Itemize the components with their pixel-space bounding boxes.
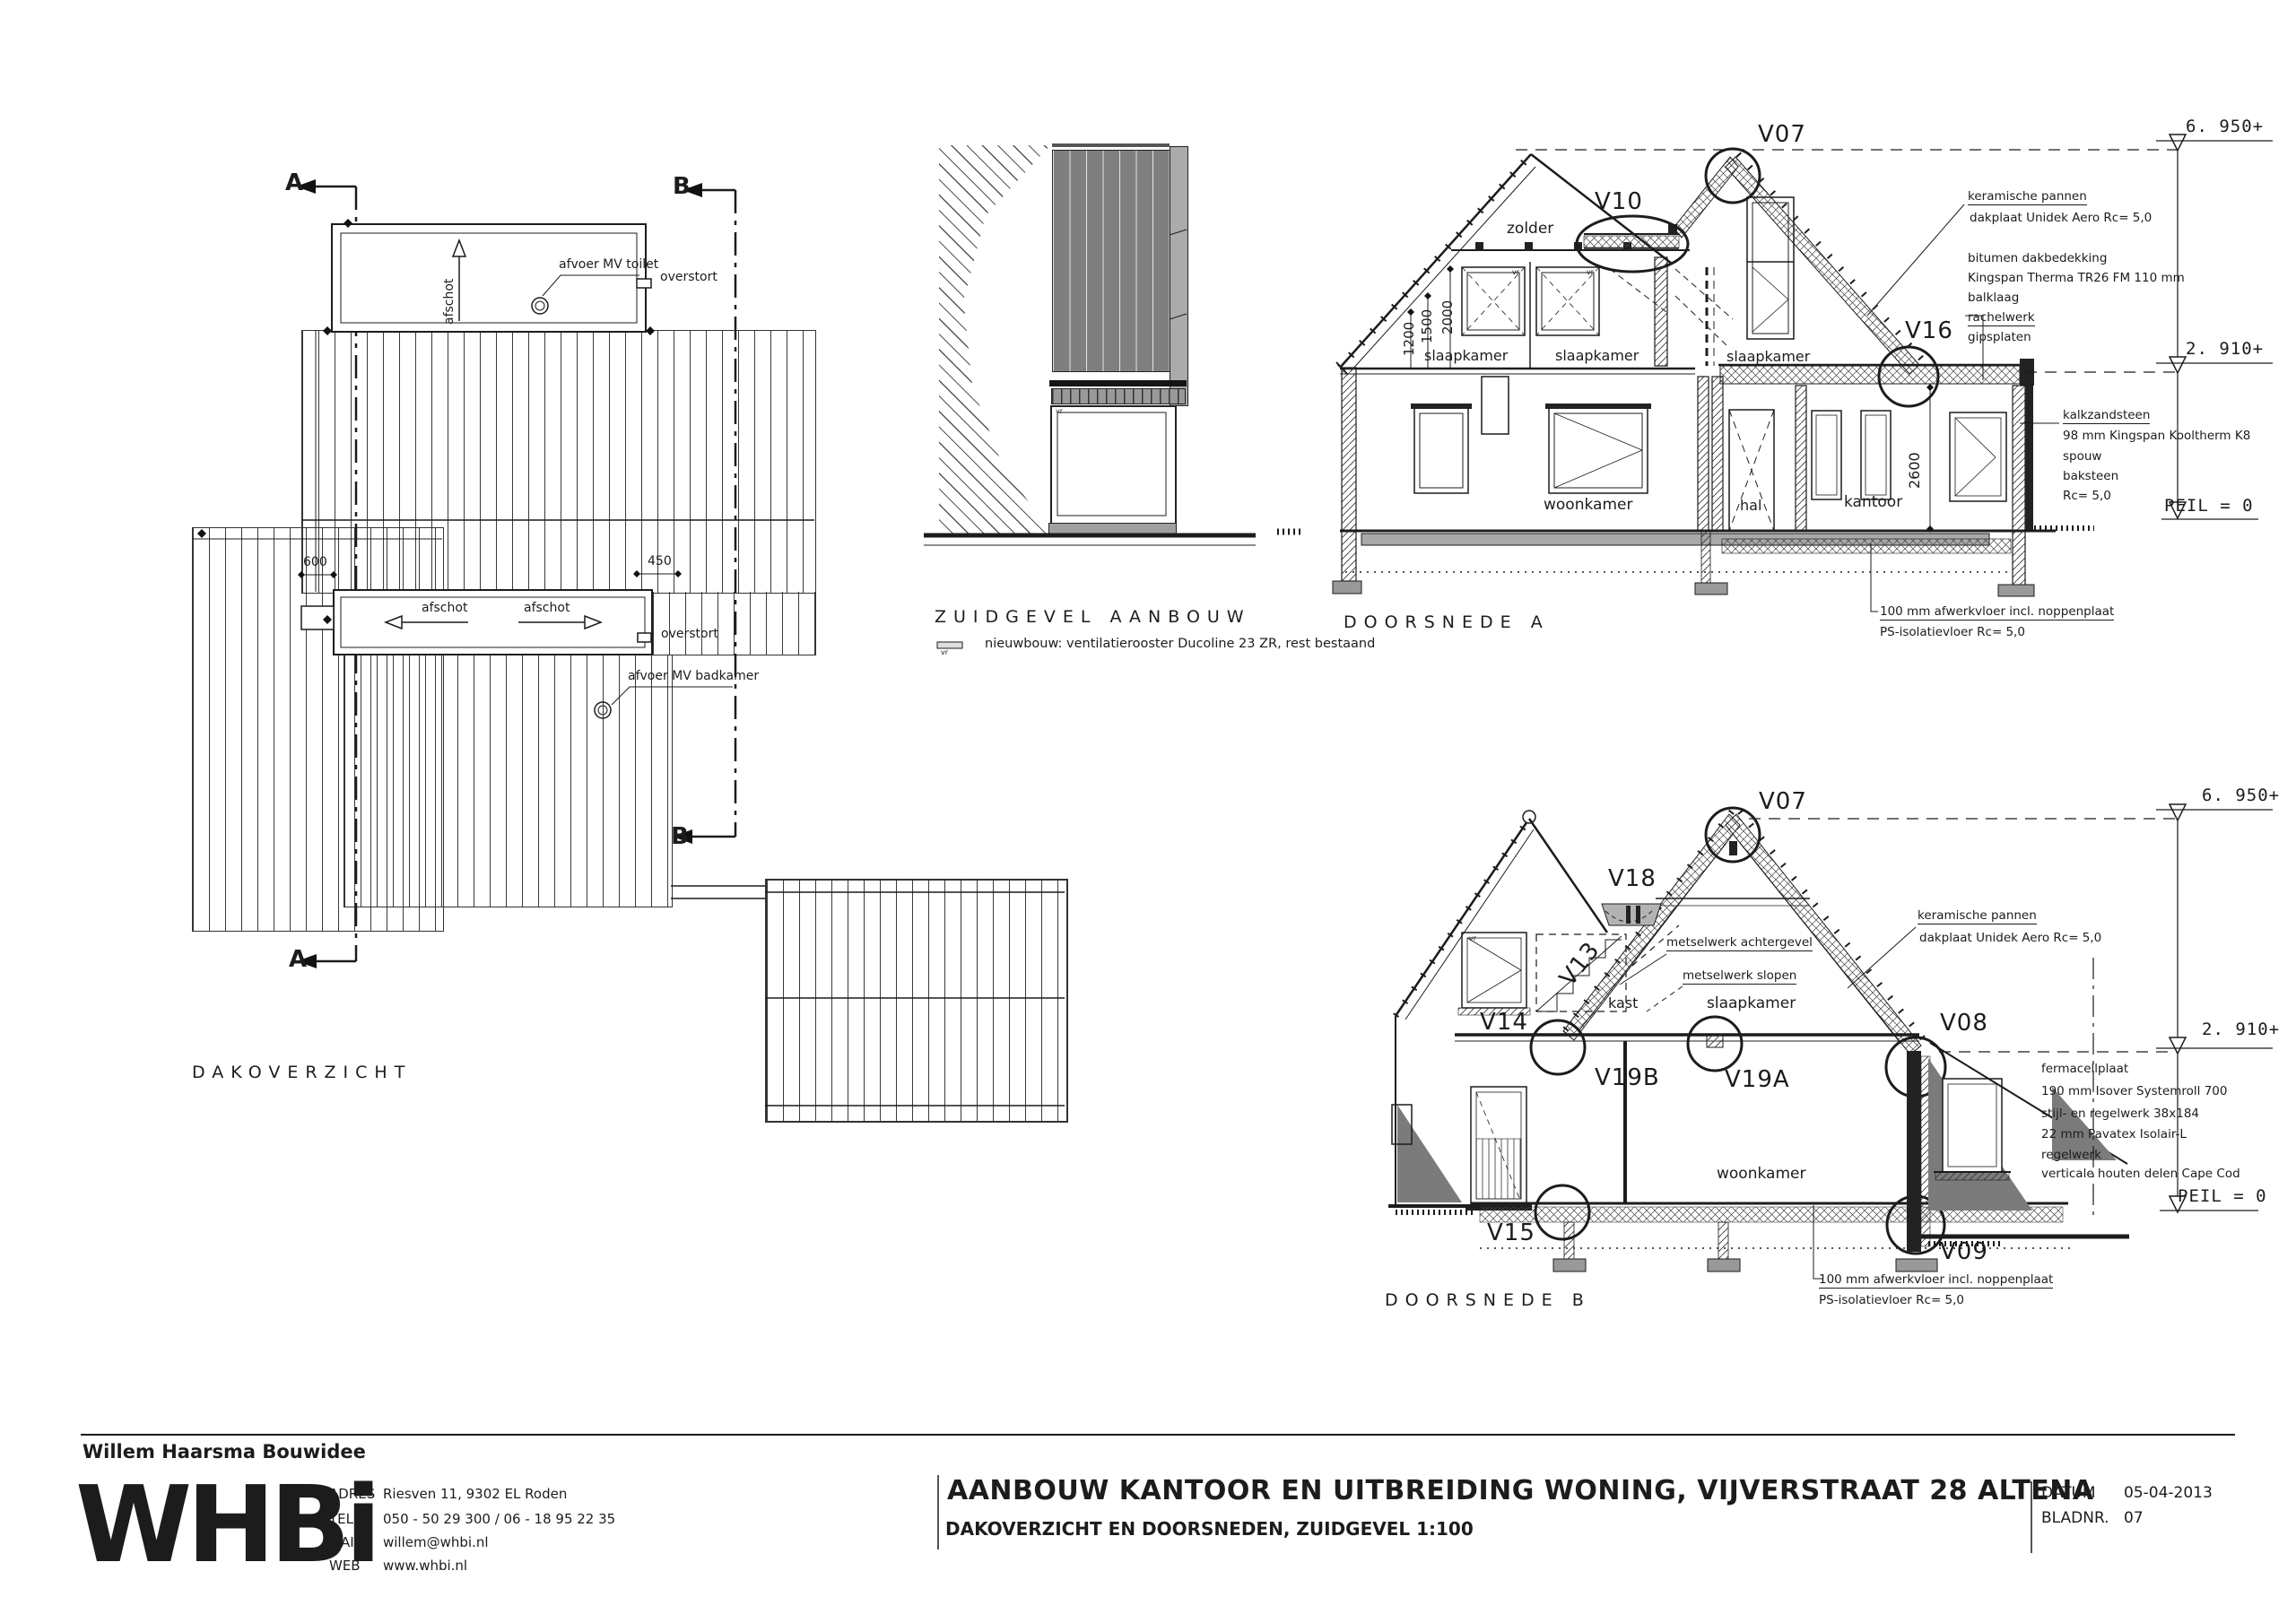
bladnr-value: 07: [2124, 1510, 2144, 1527]
room-hal: hal: [1740, 498, 1761, 514]
tag-v07-b: V07: [1759, 789, 1807, 815]
zuidgevel-title: ZUIDGEVEL AANBOUW: [935, 608, 1251, 627]
tag-v16: V16: [1905, 318, 1953, 344]
note-metselwerk-achtergevel: metselwerk achtergevel: [1666, 936, 1813, 951]
drawing-linework: [0, 0, 2296, 1623]
afvoer-mv-toilet-label: afvoer MV toilet: [559, 258, 658, 272]
note-bitumen: bitumen dakbedekking: [1968, 252, 2107, 265]
note-rc50: Rc= 5,0: [2063, 490, 2111, 503]
tag-v09: V09: [1940, 1239, 1988, 1265]
tag-v15: V15: [1487, 1220, 1535, 1246]
note-rachelwerk: rachelwerk: [1968, 311, 2035, 326]
note-keramische-b: keramische pannen: [1918, 909, 2037, 924]
project-title: AANBOUW KANTOOR EN UITBREIDING WONING, V…: [947, 1476, 2094, 1506]
tel-value: 050 - 50 29 300 / 06 - 18 95 22 35: [383, 1512, 615, 1527]
level-6950-a: 6. 950+: [2186, 117, 2264, 136]
note-isover: 190 mm Isover Systemroll 700: [2041, 1085, 2227, 1098]
note-afwerkvloer-a: 100 mm afwerkvloer incl. noppenplaat: [1880, 605, 2114, 621]
note-kalkzandsteen: kalkzandsteen: [2063, 409, 2150, 424]
note-afwerkvloer-b: 100 mm afwerkvloer incl. noppenplaat: [1819, 1273, 2053, 1289]
overstort-label-top: overstort: [660, 271, 717, 284]
mail-value: willem@whbi.nl: [383, 1535, 489, 1550]
room-slaapkamer-3: slaapkamer: [1726, 349, 1810, 365]
afschot-label-left: afschot: [422, 602, 467, 615]
room-zolder: zolder: [1507, 221, 1553, 238]
note-ps-isolatie-a: PS-isolatievloer Rc= 5,0: [1880, 626, 2025, 639]
room-woonkamer: woonkamer: [1544, 497, 1632, 514]
note-pavatex: 22 mm Pavatex Isolair-L: [2041, 1128, 2187, 1141]
datum-value: 05-04-2013: [2124, 1485, 2213, 1502]
tag-v10: V10: [1595, 189, 1643, 215]
dim-600: 600: [303, 556, 327, 569]
afschot-label-right: afschot: [524, 602, 570, 615]
room-slaapkamer-1: slaapkamer: [1424, 348, 1508, 364]
section-marker-a-bottom: A: [289, 947, 308, 973]
web-value: www.whbi.nl: [383, 1558, 467, 1574]
dim-1200: 1200: [1402, 322, 1417, 356]
note-baksteen: baksteen: [2063, 470, 2118, 483]
room-kast: kast: [1608, 995, 1638, 1011]
sheet-title: DAKOVERZICHT EN DOORSNEDEN, ZUIDGEVEL 1:…: [945, 1519, 1474, 1539]
note-kingspan-therma: Kingspan Therma TR26 FM 110 mm: [1968, 272, 2185, 285]
room-kantoor: kantoor: [1844, 494, 1902, 511]
doorsnede-a-title: DOORSNEDE A: [1344, 613, 1550, 632]
dim-2000: 2000: [1440, 300, 1456, 334]
note-cape-cod: verticale houten delen Cape Cod: [2041, 1167, 2240, 1181]
vr-mark: vr: [1587, 269, 1594, 277]
section-marker-b-top: B: [673, 174, 691, 200]
note-spouw: spouw: [2063, 450, 2101, 464]
tel-label: TEL: [329, 1512, 353, 1527]
datum-label: DATUM: [2041, 1485, 2096, 1502]
level-peil-b: PEIL = 0: [2178, 1187, 2267, 1206]
adres-value: Riesven 11, 9302 EL Roden: [383, 1487, 567, 1502]
vr-mark: vr: [1512, 269, 1519, 277]
vr-mark: vr: [1469, 935, 1476, 943]
doorsnede-b-title: DOORSNEDE B: [1385, 1291, 1591, 1310]
note-dakplaat-a: dakplaat Unidek Aero Rc= 5,0: [1970, 212, 2152, 225]
section-marker-b-bottom: B: [671, 824, 690, 850]
tag-v07-a: V07: [1758, 122, 1806, 148]
room-slaapkamer-b: slaapkamer: [1707, 995, 1796, 1012]
zuidgevel-note: nieuwbouw: ventilatierooster Ducoline 23…: [985, 638, 1375, 652]
tag-v19b: V19B: [1595, 1065, 1660, 1091]
afschot-label-vertical: afschot: [443, 279, 457, 325]
note-regelwerk: regelwerk: [2041, 1149, 2101, 1162]
level-peil-a: PEIL = 0: [2164, 497, 2254, 516]
note-balklaag: balklaag: [1968, 291, 2019, 305]
roofplan-title: DAKOVERZICHT: [192, 1063, 412, 1082]
note-gipsplaten: gipsplaten: [1968, 331, 2031, 344]
mail-label: MAIL: [329, 1535, 361, 1550]
tag-v08: V08: [1940, 1011, 1988, 1037]
note-keramische-a: keramische pannen: [1968, 190, 2087, 205]
room-slaapkamer-2: slaapkamer: [1555, 348, 1639, 364]
web-label: WEB: [329, 1558, 361, 1574]
section-marker-a-top: A: [285, 170, 304, 196]
note-fermacellplaat: fermacellplaat: [2041, 1063, 2128, 1076]
note-dakplaat-b: dakplaat Unidek Aero Rc= 5,0: [1919, 932, 2101, 945]
dim-450: 450: [648, 555, 672, 568]
note-kooltherm: 98 mm Kingspan Kooltherm K8: [2063, 430, 2250, 443]
note-ps-isolatie-b: PS-isolatievloer Rc= 5,0: [1819, 1294, 1964, 1307]
tag-v14: V14: [1480, 1010, 1528, 1036]
dim-2600: 2600: [1907, 452, 1923, 489]
note-metselwerk-slopen: metselwerk slopen: [1683, 969, 1796, 985]
tag-v19a: V19A: [1725, 1067, 1790, 1093]
vr-mark: vr: [1056, 408, 1063, 416]
company-name: Willem Haarsma Bouwidee: [83, 1442, 366, 1462]
overstort-label-bottom: overstort: [661, 628, 718, 641]
afvoer-mv-badkamer-label: afvoer MV badkamer: [628, 670, 759, 683]
vr-mark: vr: [941, 649, 948, 657]
level-2910-b: 2. 910+: [2202, 1020, 2280, 1039]
bladnr-label: BLADNR.: [2041, 1510, 2109, 1527]
level-2910-a: 2. 910+: [2186, 340, 2264, 359]
room-woonkamer-b: woonkamer: [1717, 1166, 1805, 1183]
adres-label: ADRES: [329, 1487, 375, 1502]
dim-1500: 1500: [1420, 309, 1435, 343]
drawing-sheet: A B A B afschot afvoer MV toilet oversto…: [0, 0, 2296, 1623]
note-stijl-regelwerk: stijl- en regelwerk 38x184: [2041, 1107, 2199, 1121]
tag-v18: V18: [1608, 866, 1657, 892]
level-6950-b: 6. 950+: [2202, 786, 2280, 805]
